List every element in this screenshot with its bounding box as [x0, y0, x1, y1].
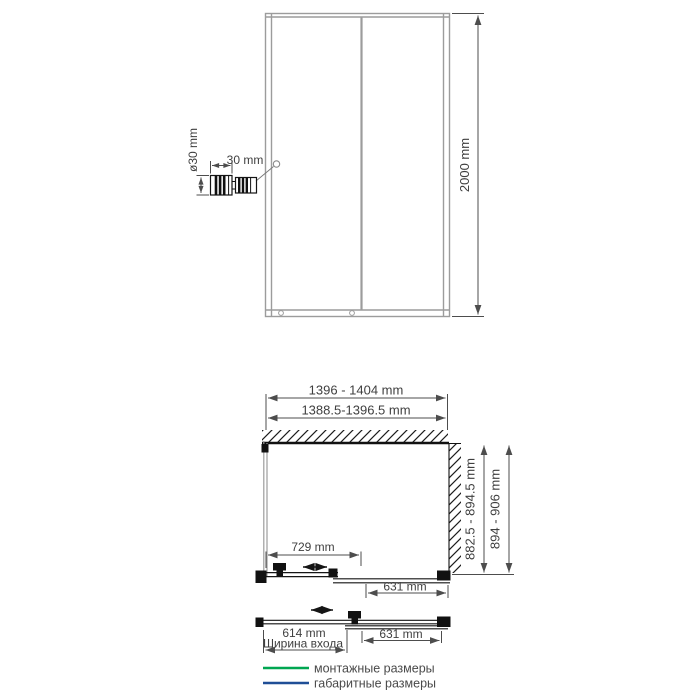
- roller-left: [279, 311, 284, 316]
- height-dimension: 2000 mm: [452, 14, 484, 317]
- knob-stripe: [246, 178, 248, 194]
- roller-right: [350, 311, 355, 316]
- left-end-bracket: [256, 571, 267, 584]
- back-wall-hatch: [262, 430, 448, 443]
- panel-overlap-bracket: [329, 569, 338, 578]
- front-view: [266, 14, 450, 317]
- door-open-plan: 614 mm Ширина входа 631 mm: [256, 610, 451, 653]
- height-label: 2000 mm: [457, 138, 472, 192]
- door-frame-outline: [266, 14, 450, 317]
- open-left-end-cap: [256, 618, 264, 628]
- legend-label-mounting: монтажные размеры: [314, 662, 435, 676]
- drawing-page: 2000 mm ø30 mm 30 mm: [0, 0, 700, 700]
- closed-handle-knob-top: [273, 563, 286, 571]
- right-end-bracket: [437, 571, 451, 581]
- open-fixed-panel-label: 631 mm: [379, 627, 422, 641]
- open-handle-knob-top: [348, 611, 361, 619]
- knob-stripe: [219, 176, 222, 196]
- closed-handle-knob-stem: [277, 571, 284, 577]
- legend-label-overall: габаритные размеры: [314, 677, 436, 691]
- legend: монтажные размеры габаритные размеры: [263, 662, 436, 691]
- knob-stripe: [223, 176, 226, 196]
- overall-width-label: 1396 - 1404 mm: [309, 383, 404, 398]
- fixed-panel-label: 631 mm: [383, 580, 426, 594]
- knob-stripe: [238, 178, 240, 194]
- handle-position-circle: [273, 161, 279, 167]
- plan-view: 1396 - 1404 mm 1388.5-1396.5 mm 882.5 - …: [256, 383, 515, 599]
- shower-door-technical-drawing: 2000 mm ø30 mm 30 mm: [0, 0, 700, 700]
- mounting-depth-label: 882.5 - 894.5 mm: [463, 458, 478, 560]
- mounting-width-label: 1388.5-1396.5 mm: [301, 403, 410, 418]
- handle-diameter-label: ø30 mm: [186, 128, 200, 172]
- handle-detail: ø30 mm 30 mm: [186, 128, 274, 195]
- knob-stripe: [242, 178, 244, 194]
- right-wall-hatch: [449, 444, 461, 573]
- sliding-panel-label: 729 mm: [291, 540, 334, 554]
- side-panel-wall-anchor: [262, 444, 269, 453]
- handle-width-label: 30 mm: [227, 153, 264, 167]
- overall-depth-label: 894 - 906 mm: [488, 469, 503, 549]
- knob-stripe: [215, 176, 218, 196]
- open-right-bracket: [437, 617, 451, 628]
- entrance-width-caption: Ширина входа: [263, 637, 343, 651]
- open-handle-knob-stem: [352, 619, 359, 625]
